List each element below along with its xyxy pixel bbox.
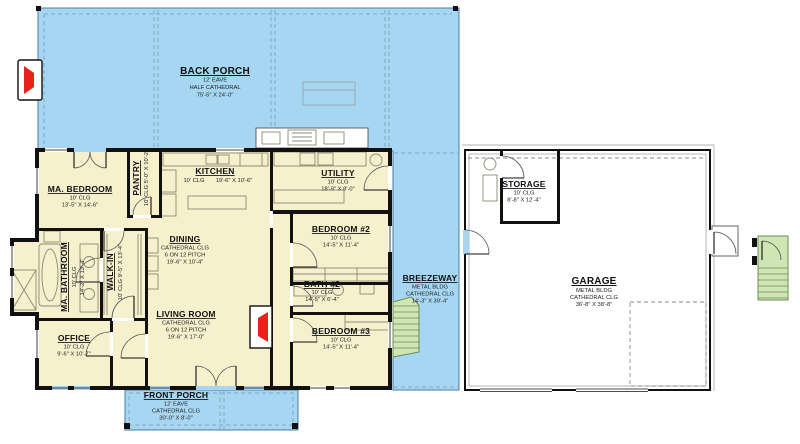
outdoor-kitchen-counter <box>256 128 368 148</box>
garage-sub: CATHEDRAL CLG <box>570 295 618 301</box>
office-dim: 9'-6" X 10'-7" <box>57 352 90 358</box>
floor-plan: BACK PORCH 12' EAVE HALF CATHEDRAL 75'-5… <box>0 0 800 444</box>
living-room-sub: 6 ON 12 PITCH <box>166 328 207 334</box>
garage-dim: 36'-8" X 38'-8" <box>576 302 613 308</box>
ma-bedroom-dim: 13'-5" X 14'-6" <box>62 203 99 209</box>
porch-fireplace-icon <box>18 60 42 100</box>
breezeway-sub: METAL BLDG <box>412 285 449 291</box>
bedroom-3-dim: 14'-5" X 11'-4" <box>323 345 359 351</box>
dining-sub: CATHEDRAL CLG <box>161 246 209 252</box>
breezeway-name: BREEZEWAY <box>403 273 458 283</box>
back-porch-sub: HALF CATHEDRAL <box>189 85 241 91</box>
bedroom-2-name: BEDROOM #2 <box>312 224 370 234</box>
kitchen-dim: 19'-6" X 10'-6" <box>216 178 253 184</box>
storage-sub: 10' CLG <box>513 191 535 197</box>
storage-name: STORAGE <box>502 179 545 189</box>
bedroom-3-name: BEDROOM #3 <box>312 326 370 336</box>
utility-dim: 18'-9" X 8'-0" <box>321 187 354 193</box>
walk-in-name: WALK-IN <box>105 253 115 291</box>
living-room-sub: CATHEDRAL CLG <box>162 321 210 327</box>
stoop-stairs-icon <box>752 236 788 300</box>
back-porch-name: BACK PORCH <box>180 66 250 77</box>
ma-bathroom-dim: 14'-2" X 13'-4" <box>80 259 86 296</box>
front-porch-name: FRONT PORCH <box>144 390 209 400</box>
room-label-garage: GARAGE METAL BLDG CATHEDRAL CLG 36'-8" X… <box>570 276 618 308</box>
ma-bathroom-sub: 10' CLG <box>72 266 78 288</box>
ma-bedroom-sub: 10' CLG <box>69 196 91 202</box>
pantry-name: PANTRY <box>131 160 141 195</box>
bedroom-2-dim: 14'-5" X 11'-4" <box>323 243 359 249</box>
utility-sub: 10' CLG <box>327 180 349 186</box>
garage-side-entry <box>708 226 738 256</box>
ma-bedroom-name: MA. BEDROOM <box>48 184 113 194</box>
front-porch-sub: CATHEDRAL CLG <box>152 409 200 415</box>
storage-dim: 8'-8" X 12'-4" <box>507 198 540 204</box>
garage-sub: METAL BLDG <box>576 288 613 294</box>
bath-2-name: BATH #2 <box>304 279 340 289</box>
bath-2-dim: 14'-5" X 6'-4" <box>305 297 338 303</box>
back-porch-sub: 12' EAVE <box>203 78 227 84</box>
living-room-dim: 19'-6" X 17'-0" <box>168 335 205 341</box>
front-porch-sub: 12' EAVE <box>164 402 188 408</box>
bath-2-sub: 10' CLG <box>311 290 333 296</box>
breezeway-sub: CATHEDRAL CLG <box>406 292 454 298</box>
ma-bathroom-name: MA. BATHROOM <box>59 242 69 312</box>
walk-in-sub: 10' CLG 9'-5" X 13'-4" <box>118 244 124 300</box>
floor-plan-page: BACK PORCH 12' EAVE HALF CATHEDRAL 75'-5… <box>0 0 800 444</box>
living-room-fireplace-icon <box>250 306 272 348</box>
dining-name: DINING <box>170 234 201 244</box>
back-porch-dim: 75'-5" X 24'-0" <box>197 93 234 99</box>
front-porch-dim: 30'-0" X 8'-0" <box>159 416 192 422</box>
dining-sub: 6 ON 12 PITCH <box>165 253 206 259</box>
pantry-sub: 10' CLG 5'-0" X 10'-2" <box>144 150 150 206</box>
kitchen-name: KITCHEN <box>195 166 234 176</box>
bedroom-2-sub: 10' CLG <box>330 236 352 242</box>
kitchen-sub: 10' CLG <box>183 178 205 184</box>
office-name: OFFICE <box>58 333 90 343</box>
office-sub: 10' CLG <box>63 345 85 351</box>
breezeway-dim: 14'-3" X 39'-4" <box>412 299 449 305</box>
bedroom-3-sub: 10' CLG <box>330 338 352 344</box>
dining-dim: 19'-6" X 10'-4" <box>167 260 204 266</box>
utility-name: UTILITY <box>321 168 355 178</box>
living-room-name: LIVING ROOM <box>156 309 215 319</box>
breezeway-stairs-icon <box>393 297 419 357</box>
garage-name: GARAGE <box>571 276 616 287</box>
